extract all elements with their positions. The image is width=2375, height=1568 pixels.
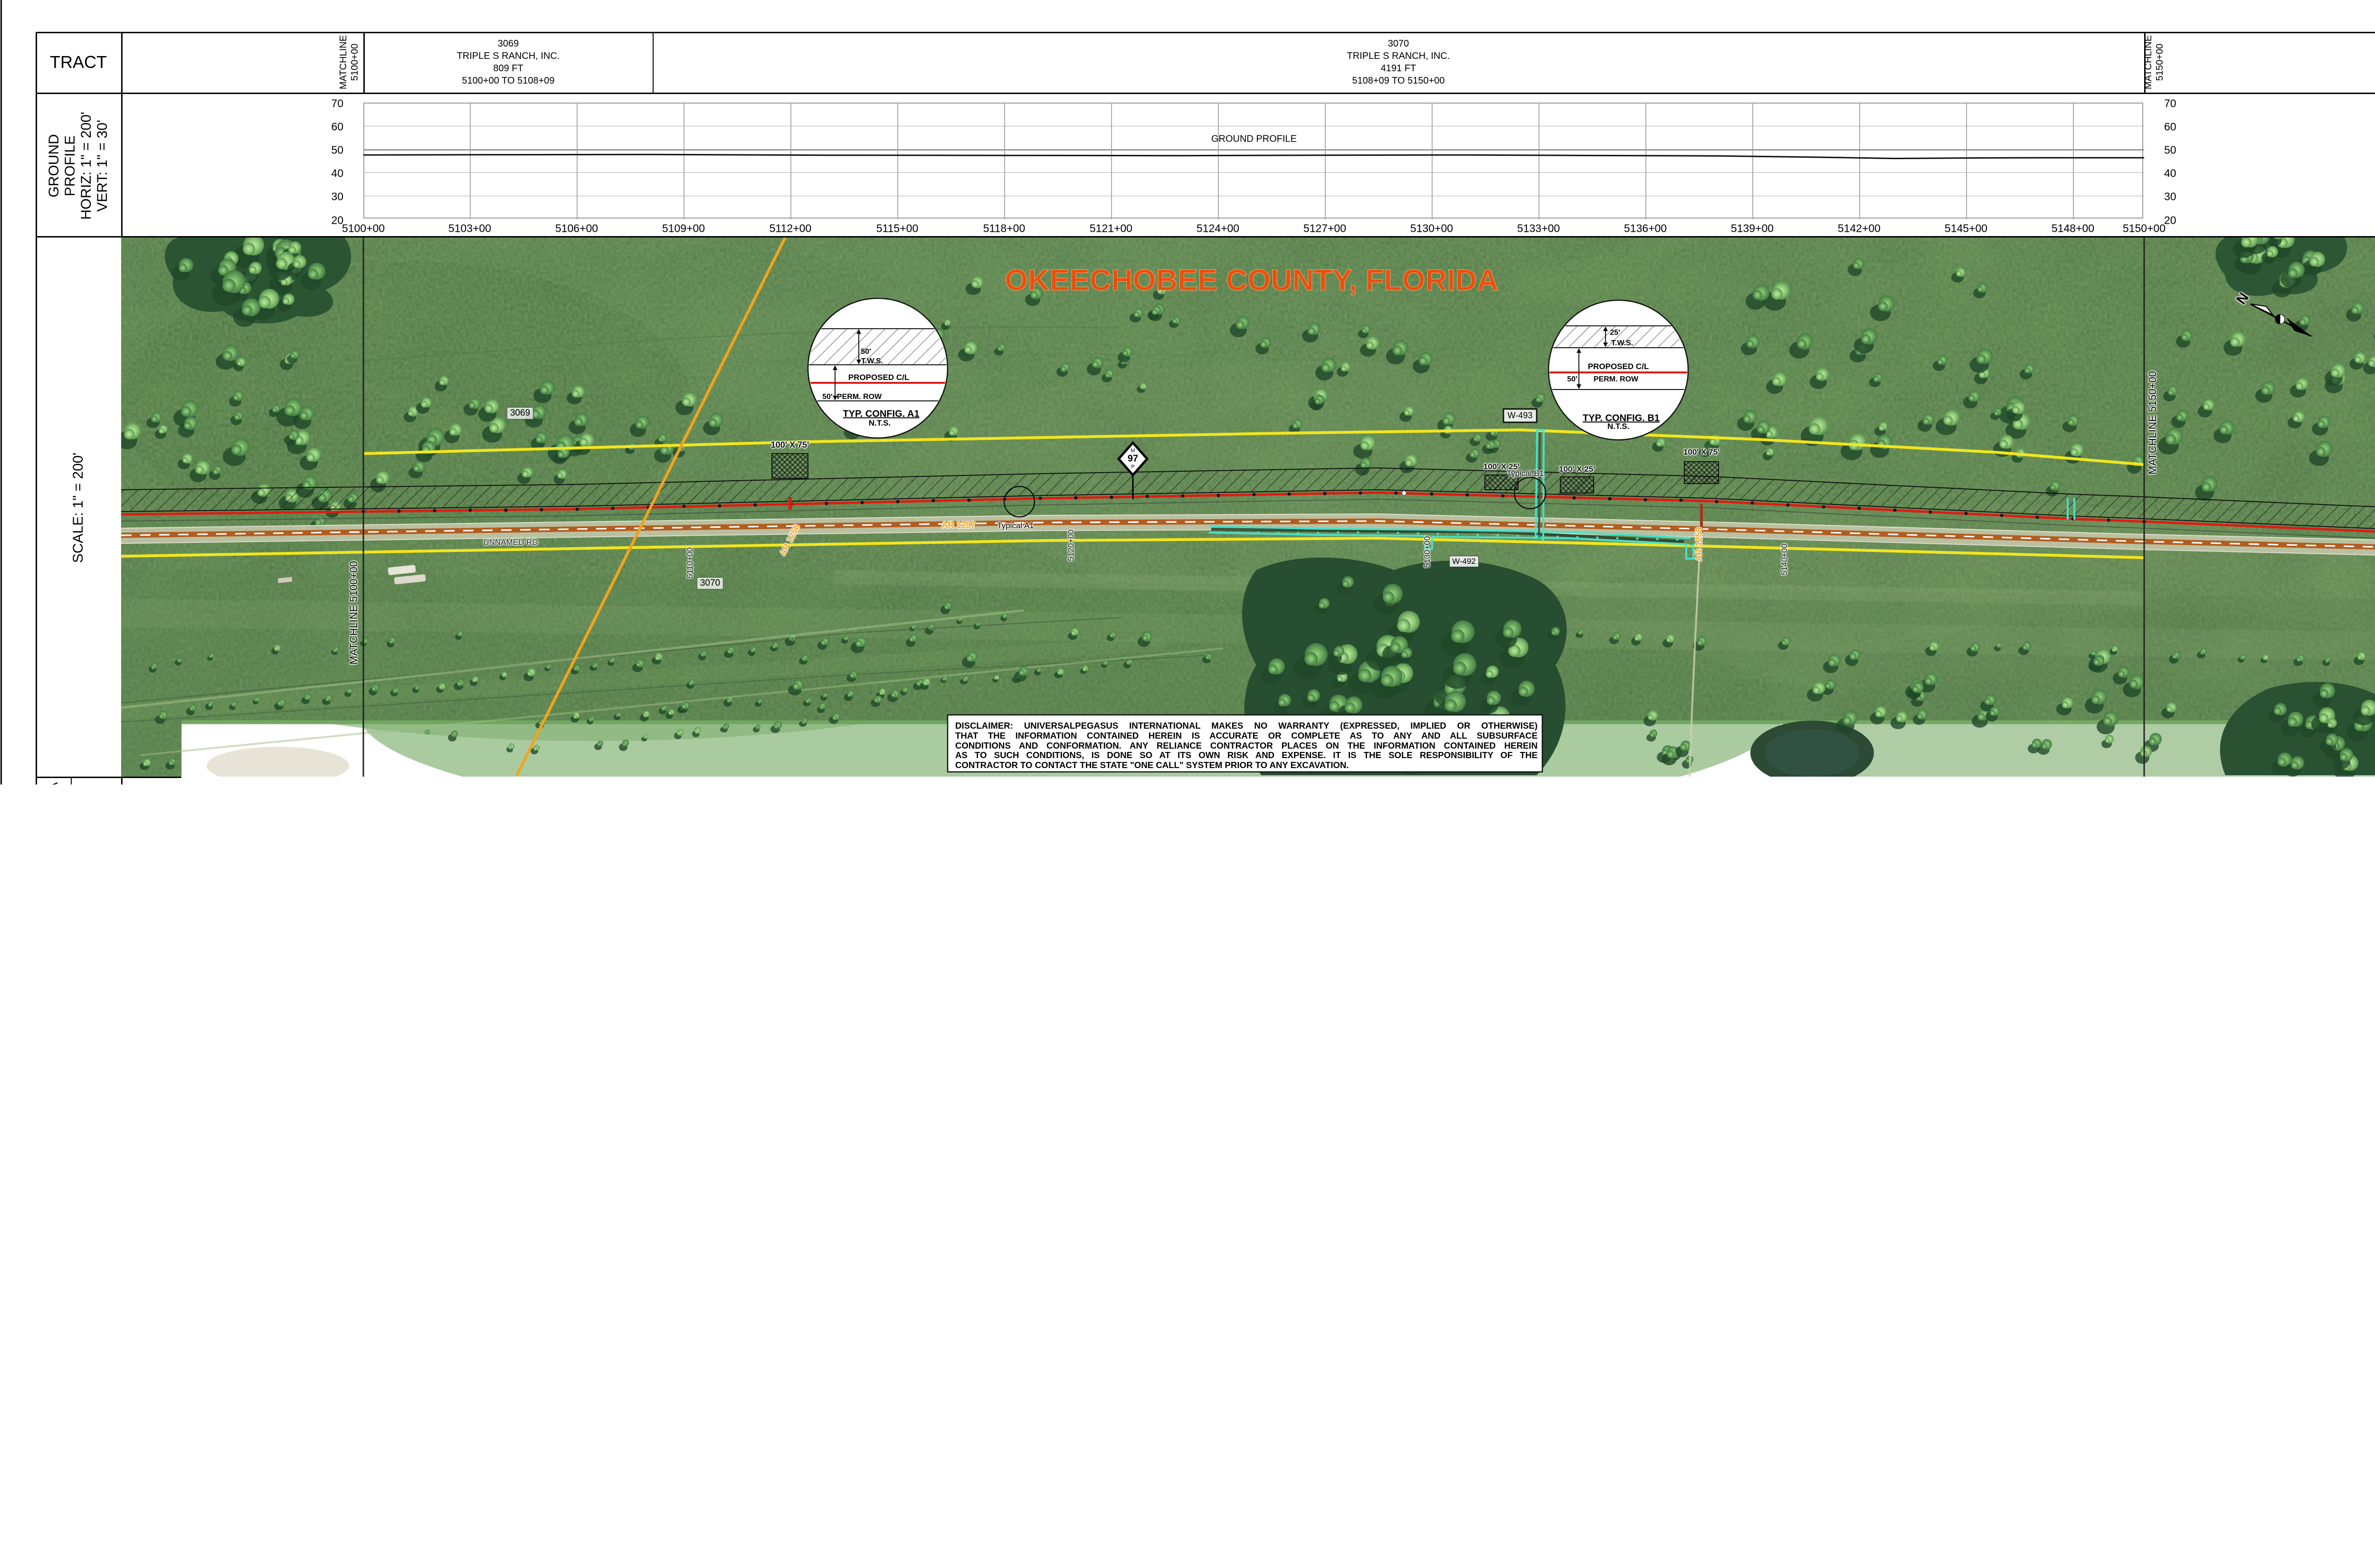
svg-text:2: 2: [1275, 1438, 1278, 1445]
svg-text:T: T: [1387, 1324, 1391, 1332]
svg-text:A: A: [1271, 1524, 1275, 1532]
svg-text:P: P: [1387, 1314, 1391, 1322]
svg-text:101: 101: [1268, 1396, 1278, 1403]
svg-text:W: W: [1374, 1511, 1378, 1516]
svg-text:UniversalPegasus: UniversalPegasus: [2000, 1366, 2158, 1391]
svg-text:XXXXXXXX: XXXXXXXX: [1491, 1398, 1527, 1406]
svg-text:S: S: [1387, 1348, 1391, 1356]
svg-text:A Subsidiary of Huntington Ing: A Subsidiary of Huntington Ingalls Indus…: [1998, 1410, 2179, 1420]
svg-text:XX: XX: [1268, 1500, 1278, 1508]
svg-text:CONNECTION.: CONNECTION.: [2217, 1379, 2355, 1400]
svg-text:X: X: [1387, 1302, 1391, 1311]
svg-text:INTERNATIONAL: INTERNATIONAL: [2015, 1394, 2153, 1406]
svg-text:W: W: [1386, 1337, 1393, 1345]
svg-text:XX: XX: [1269, 1420, 1277, 1427]
svg-text:Typical / Detail: Typical / Detail: [1492, 1443, 1522, 1448]
svg-text:C: C: [1387, 1359, 1392, 1368]
svg-text:XXXXX.XXX: XXXXX.XXX: [1490, 1387, 1528, 1395]
svg-text:P: P: [1272, 1508, 1275, 1513]
svg-text:U: U: [1387, 1371, 1392, 1379]
svg-text:1: 1: [1262, 1438, 1265, 1445]
